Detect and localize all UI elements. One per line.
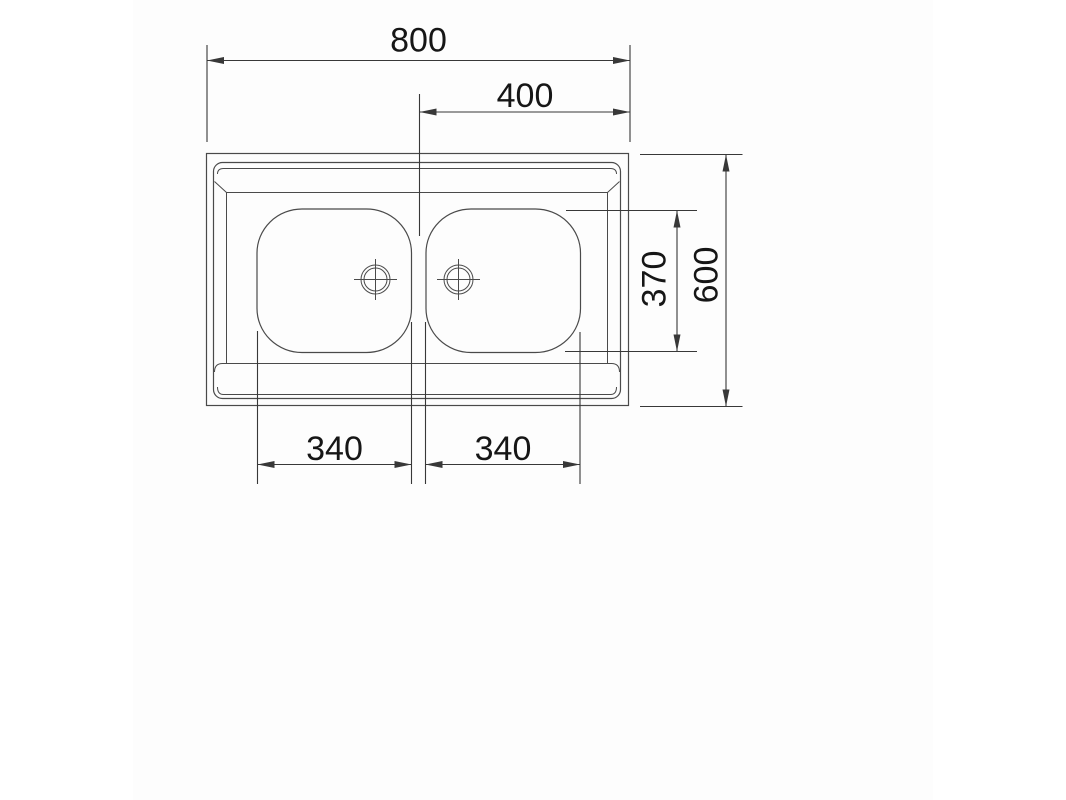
sink-technical-drawing: 800 400 600 370 340 xyxy=(0,0,1066,800)
dim-left-bowl-width: 340 xyxy=(258,322,412,484)
arrowhead-left-icon xyxy=(258,461,275,468)
dim-label-overall-depth: 600 xyxy=(688,247,726,304)
dim-label-right-bowl-width: 340 xyxy=(475,430,532,468)
dim-right-half-width: 400 xyxy=(420,77,631,236)
right-bowl xyxy=(426,209,581,353)
dim-bowl-depth: 370 xyxy=(565,211,697,352)
dim-label-right-half-width: 400 xyxy=(497,77,554,115)
dim-label-bowl-depth: 370 xyxy=(636,251,674,308)
arrowhead-left-icon xyxy=(420,109,437,116)
sink-outer-edge xyxy=(207,154,629,406)
arrowhead-down-icon xyxy=(723,390,730,407)
sink-body xyxy=(207,154,629,406)
left-drain-icon xyxy=(354,259,397,300)
right-drain-icon xyxy=(437,259,480,300)
arrowhead-right-icon xyxy=(613,109,630,116)
arrowhead-up-icon xyxy=(674,211,681,228)
bottom-ledge-upper-edge xyxy=(215,364,620,373)
dim-label-left-bowl-width: 340 xyxy=(306,430,363,468)
arrowhead-right-icon xyxy=(613,57,630,64)
arrowhead-down-icon xyxy=(674,335,681,352)
left-bowl xyxy=(257,209,412,353)
arrowhead-left-icon xyxy=(426,461,443,468)
arrowhead-left-icon xyxy=(207,57,224,64)
arrowhead-right-icon xyxy=(395,461,412,468)
dim-label-overall-width: 800 xyxy=(390,22,447,60)
top-ledge-upper-edge xyxy=(218,169,617,175)
dim-overall-width: 800 xyxy=(207,22,630,143)
arrowhead-right-icon xyxy=(563,461,580,468)
top-ledge-lower-edge xyxy=(215,182,620,193)
bottom-ledge-lower-edge xyxy=(218,387,617,395)
arrowhead-up-icon xyxy=(723,155,730,172)
